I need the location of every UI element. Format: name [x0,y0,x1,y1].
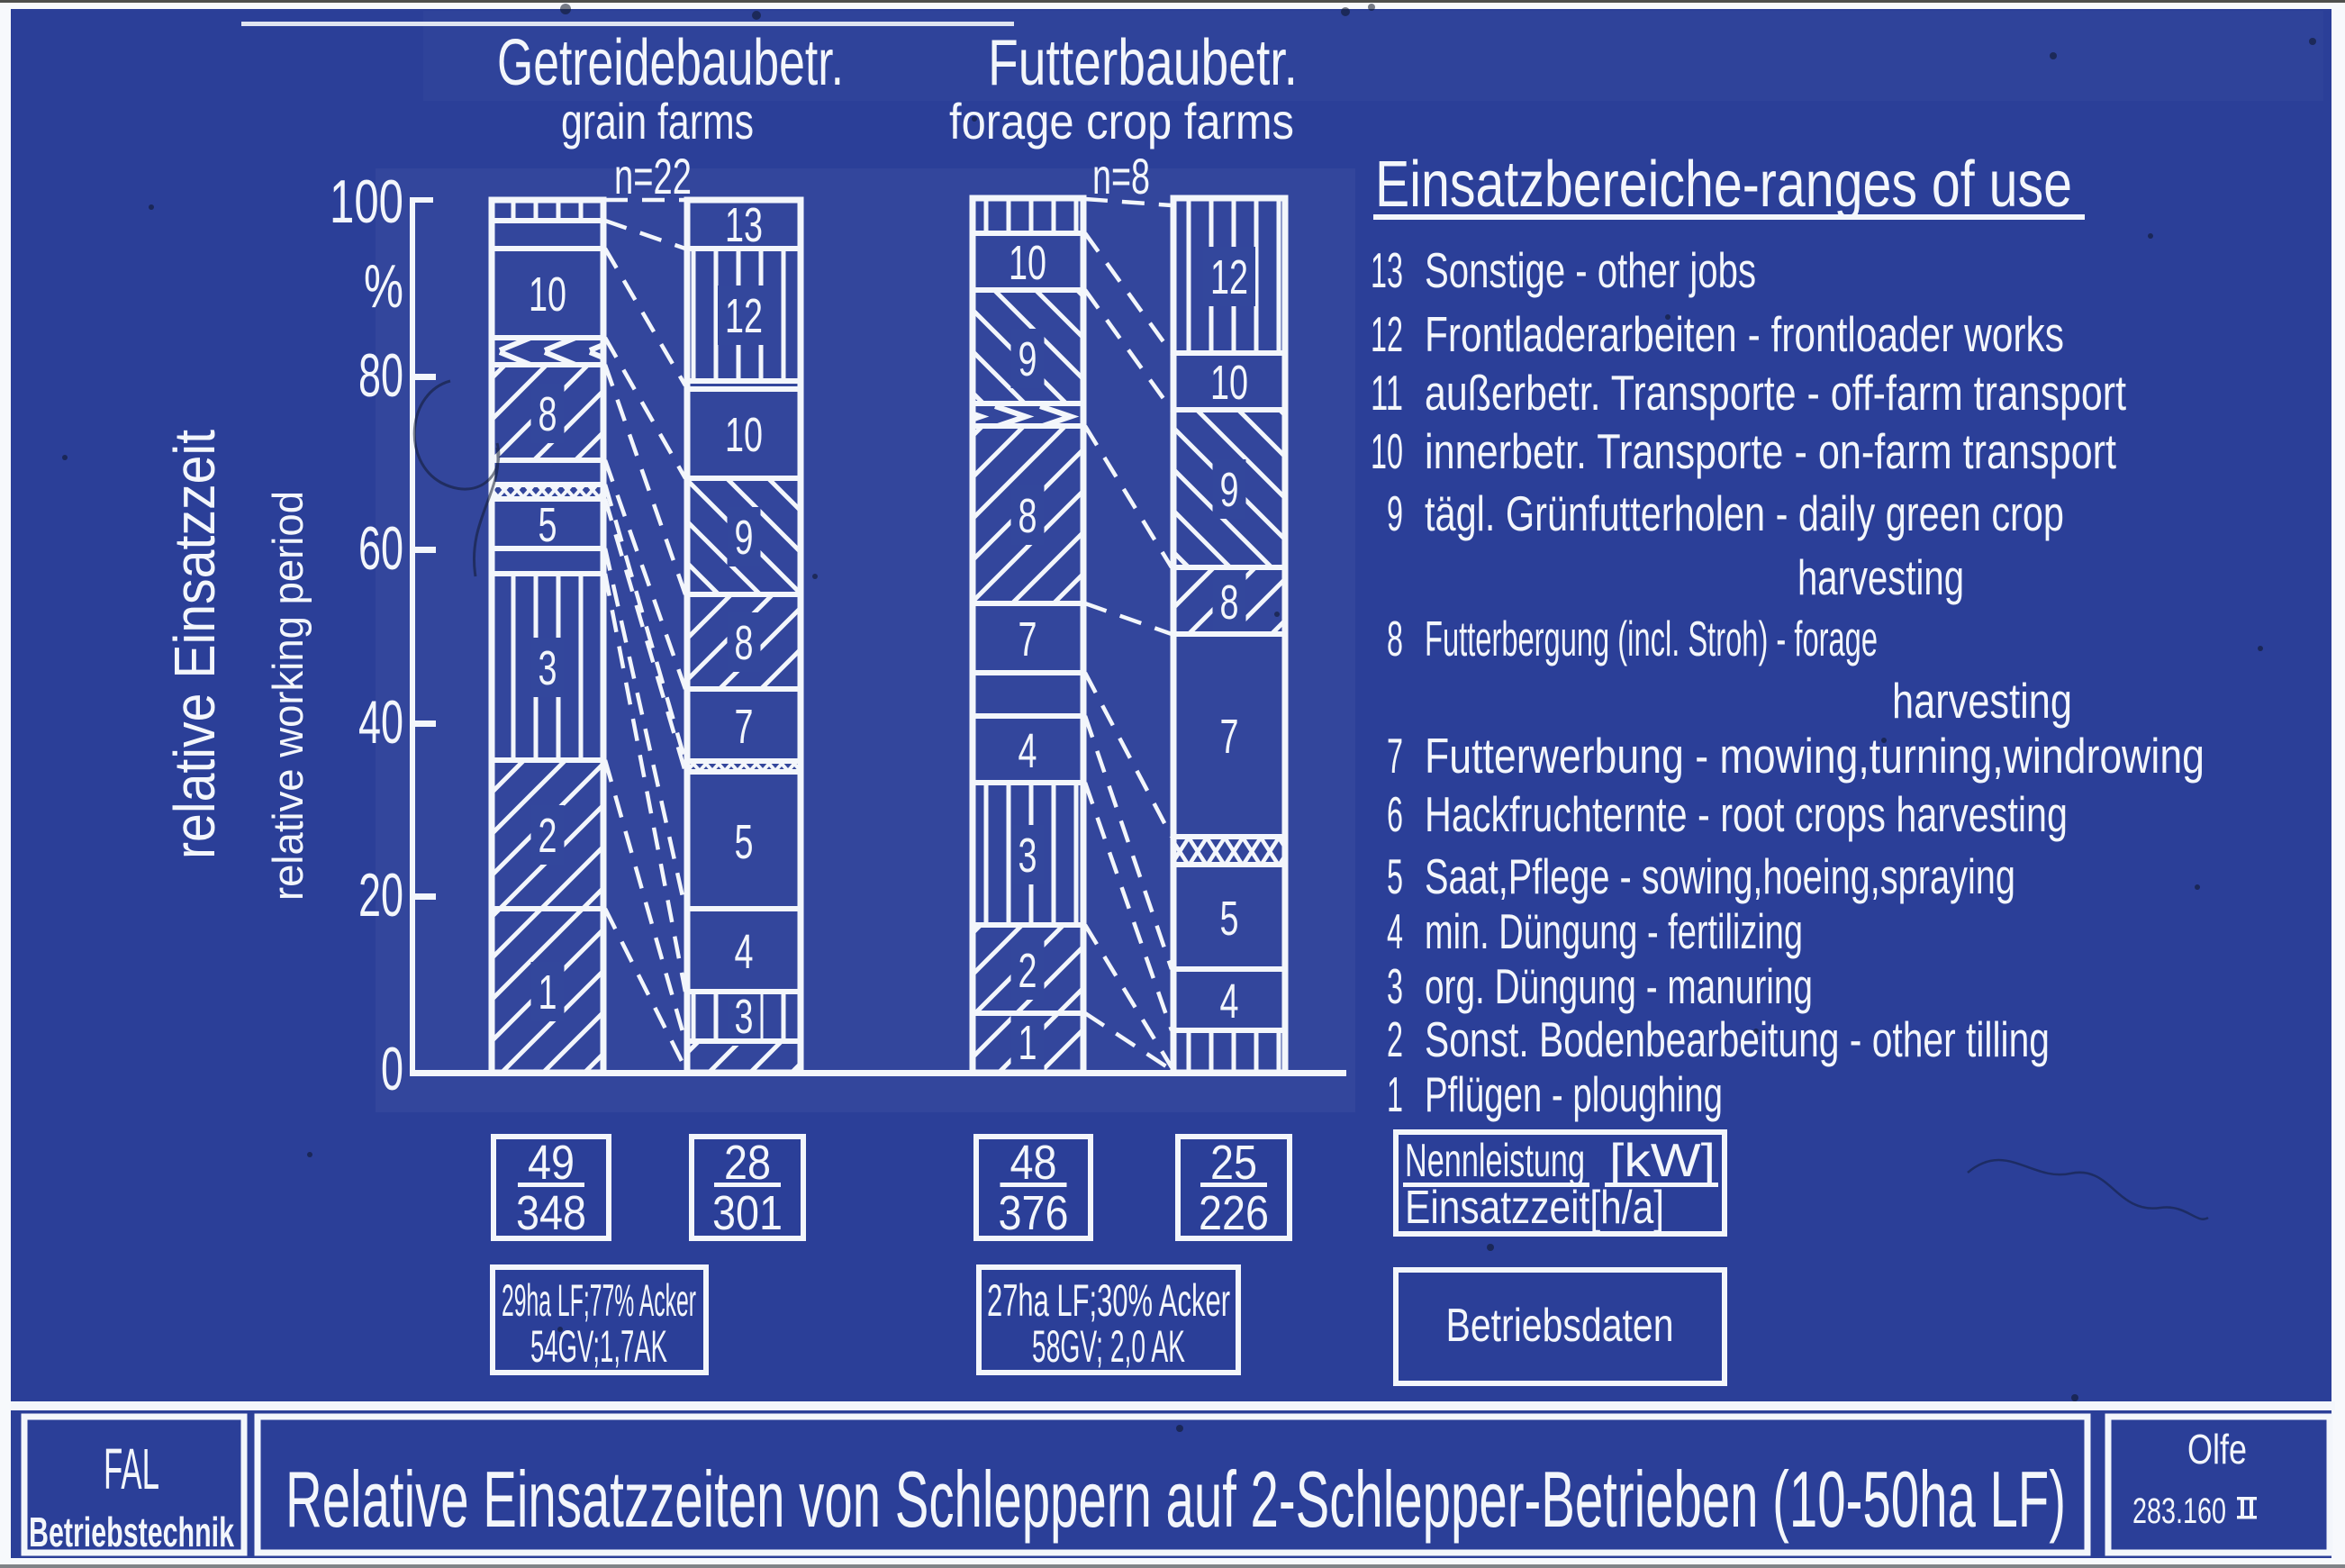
svg-text:80: 80 [358,341,403,410]
svg-text:8: 8 [735,616,754,670]
svg-text:5: 5 [1387,848,1403,904]
svg-text:10: 10 [1210,356,1248,410]
svg-text:forage crop farms: forage crop farms [949,93,1294,150]
svg-text:min. Düngung - fertilizing: min. Düngung - fertilizing [1425,903,1803,959]
svg-text:9: 9 [735,511,754,565]
svg-text:8: 8 [1387,611,1403,666]
svg-text:innerbetr. Transporte - on-far: innerbetr. Transporte - on-farm transpor… [1425,423,2116,479]
svg-text:Pflügen - ploughing: Pflügen - ploughing [1425,1066,1723,1122]
svg-text:49: 49 [528,1136,575,1190]
svg-text:8: 8 [1220,576,1239,630]
svg-text:40: 40 [358,688,403,757]
svg-text:1: 1 [1019,1016,1037,1070]
svg-text:11: 11 [1371,365,1403,421]
svg-text:n=8: n=8 [1092,148,1150,204]
svg-text:7: 7 [1387,728,1403,784]
svg-text:Frontladerarbeiten - frontload: Frontladerarbeiten - frontloader works [1425,306,2064,362]
svg-text:2: 2 [1387,1011,1403,1067]
svg-text:58GV; 2,0 AK: 58GV; 2,0 AK [1032,1321,1185,1372]
svg-text:außerbetr. Transporte - off-fa: außerbetr. Transporte - off-farm transpo… [1425,365,2126,421]
svg-text:10: 10 [1009,236,1046,290]
svg-text:Futterbaubetr.: Futterbaubetr. [988,27,1298,99]
svg-text:Betriebsdaten: Betriebsdaten [1446,1300,1674,1352]
svg-text:48: 48 [1010,1136,1057,1190]
svg-text:3: 3 [1019,829,1037,883]
svg-text:Sonst. Bodenbearbeitung - othe: Sonst. Bodenbearbeitung - other tilling [1425,1011,2050,1067]
svg-text:9: 9 [1019,332,1037,386]
svg-text:226: 226 [1199,1186,1269,1240]
svg-text:grain farms: grain farms [561,93,754,150]
svg-text:10: 10 [1371,423,1403,479]
svg-text:2: 2 [539,809,557,863]
svg-text:Futterbergung (incl. Stroh) -: Futterbergung (incl. Stroh) - forage [1425,611,1878,666]
svg-text:9: 9 [1387,485,1403,541]
svg-text:12: 12 [1210,250,1248,304]
svg-text:20: 20 [358,861,403,929]
svg-text:Nennleistung: Nennleistung [1405,1135,1585,1187]
svg-text:1: 1 [1387,1066,1403,1122]
svg-text:7: 7 [1220,710,1239,764]
svg-text:60: 60 [358,514,403,583]
svg-text:7: 7 [735,700,754,754]
svg-text:relative Einsatzzeit: relative Einsatzzeit [162,430,227,859]
svg-text:FAL: FAL [104,1437,159,1501]
svg-text:1: 1 [539,965,557,1020]
svg-text:3: 3 [1387,958,1403,1014]
svg-text:8: 8 [1019,489,1037,543]
svg-text:9: 9 [1220,463,1239,517]
svg-text:13: 13 [725,198,763,252]
svg-text:Futterwerbung - mowing,turning: Futterwerbung - mowing,turning,windrowin… [1425,728,2205,784]
svg-text:5: 5 [735,815,754,869]
svg-text:harvesting: harvesting [1797,549,1964,605]
svg-text:3: 3 [539,641,557,695]
svg-text:Einsatzbereiche-ranges of use: Einsatzbereiche-ranges of use [1375,149,2072,221]
svg-text:Olfe: Olfe [2187,1426,2247,1473]
svg-text:27ha LF;30% Acker: 27ha LF;30% Acker [987,1275,1230,1326]
svg-text:tägl. Grünfutterholen - daily: tägl. Grünfutterholen - daily green crop [1425,485,2064,541]
svg-text:25: 25 [1210,1136,1257,1190]
svg-text:54GV;1,7AK: 54GV;1,7AK [530,1321,667,1372]
svg-text:n=22: n=22 [614,148,692,204]
svg-text:[kW]: [kW] [1609,1135,1716,1187]
svg-text:8: 8 [539,387,557,441]
svg-text:Relative Einsatzzeiten von Sch: Relative Einsatzzeiten von Schleppern au… [285,1455,2066,1544]
svg-text:Sonstige - other jobs: Sonstige - other jobs [1425,242,1756,298]
svg-text:10: 10 [529,267,566,322]
svg-text:4: 4 [1220,974,1239,1029]
svg-text:13: 13 [1371,242,1403,298]
svg-text:29ha LF;77% Acker: 29ha LF;77% Acker [502,1275,696,1326]
svg-text:%: % [364,252,403,321]
svg-text:3: 3 [735,990,754,1044]
svg-text:376: 376 [999,1186,1069,1240]
svg-text:100: 100 [330,168,403,236]
svg-text:Getreidebaubetr.: Getreidebaubetr. [497,27,844,99]
svg-text:348: 348 [516,1186,586,1240]
svg-text:org. Düngung - manuring: org. Düngung - manuring [1425,958,1813,1014]
svg-text:2: 2 [1019,944,1037,998]
svg-text:Hackfruchternte - root crops h: Hackfruchternte - root crops harvesting [1425,786,2068,842]
svg-text:0: 0 [381,1035,403,1103]
svg-text:Einsatzzeit[h/a]: Einsatzzeit[h/a] [1405,1182,1664,1234]
svg-text:28: 28 [724,1136,771,1190]
svg-text:relative working period: relative working period [264,491,312,901]
svg-text:harvesting: harvesting [1892,673,2072,729]
svg-text:Saat,Pflege - sowing,hoeing,sp: Saat,Pflege - sowing,hoeing,spraying [1425,848,2015,904]
svg-text:5: 5 [539,498,557,552]
svg-text:4: 4 [1019,724,1037,778]
svg-text:12: 12 [725,289,763,343]
svg-text:Betriebstechnik: Betriebstechnik [29,1509,234,1555]
svg-text:5: 5 [1220,892,1239,946]
svg-text:12: 12 [1371,306,1403,362]
svg-text:7: 7 [1019,612,1037,666]
svg-text:6: 6 [1387,786,1403,842]
svg-text:301: 301 [712,1186,783,1240]
svg-text:10: 10 [725,408,763,462]
svg-text:4: 4 [1387,903,1403,959]
svg-text:283.160: 283.160 [2132,1491,2226,1531]
svg-text:4: 4 [735,925,754,979]
